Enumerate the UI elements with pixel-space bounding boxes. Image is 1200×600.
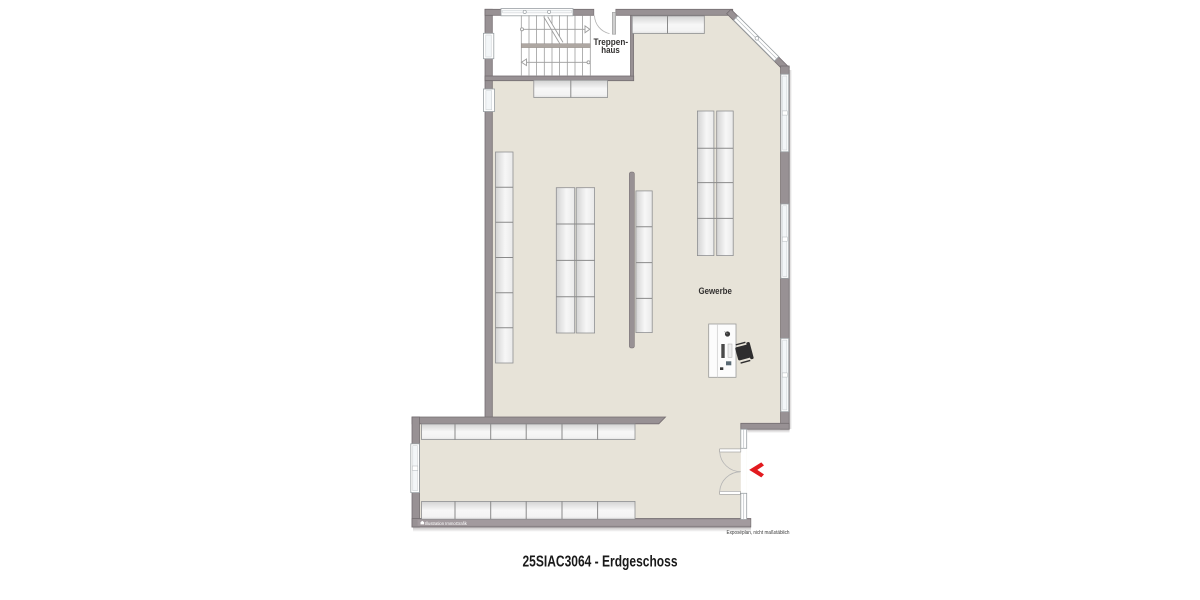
- svg-text:haus: haus: [601, 45, 620, 55]
- svg-text:Exposéplan, nicht maßstäblich: Exposéplan, nicht maßstäblich: [727, 530, 790, 536]
- svg-text:Gewerbe: Gewerbe: [698, 286, 732, 296]
- svg-text:25SIAC3064 - Erdgeschoss: 25SIAC3064 - Erdgeschoss: [523, 554, 678, 571]
- svg-text:Illustration ImmoGrafik: Illustration ImmoGrafik: [425, 521, 468, 526]
